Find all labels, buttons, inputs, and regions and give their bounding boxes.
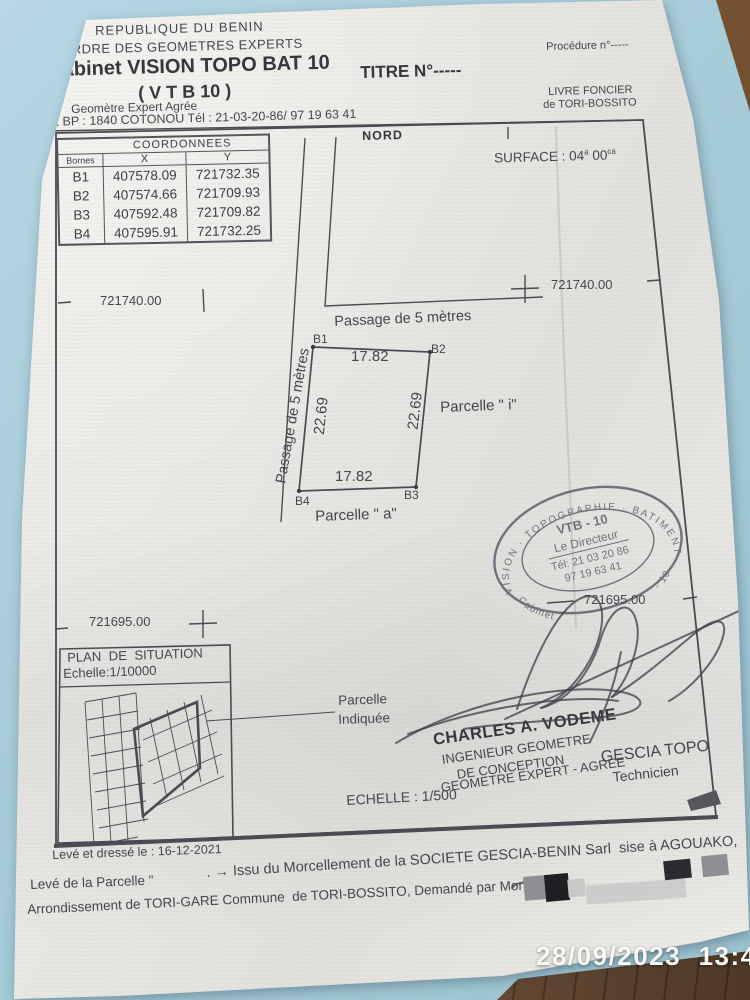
dimension-left: 22.69 bbox=[312, 396, 332, 435]
surface-centiares: 00 bbox=[592, 148, 607, 163]
parcel-outline bbox=[299, 347, 430, 491]
borne-y: 721732.35 bbox=[186, 164, 269, 185]
org-role: Technicien bbox=[612, 763, 679, 785]
stamp-directeur-text: Le Directeur bbox=[553, 527, 620, 555]
dimension-right: 22.69 bbox=[406, 391, 427, 430]
tick-mid-top bbox=[203, 289, 204, 312]
address-line: 02 BP : 1840 COTONOU Tél : 21-03-20-86/ … bbox=[45, 108, 357, 130]
borne-b4-label: B4 bbox=[295, 495, 310, 508]
stamp-outer-ring bbox=[482, 469, 695, 631]
svg-text:VISION · TOPOGRAPHIE · BATIMEN: VISION · TOPOGRAPHIE · BATIMENT bbox=[488, 485, 684, 597]
engineer-name: CHARLES A. VODEME bbox=[432, 705, 618, 749]
stamp-ring-top-text: VISION · TOPOGRAPHIE · BATIMENT bbox=[488, 485, 684, 597]
coordinates-table-header: Bornes X Y bbox=[58, 151, 268, 168]
borne-x: 407595.91 bbox=[104, 222, 187, 243]
grid-label-721695-right: 721695.00 bbox=[584, 593, 645, 607]
redaction-light bbox=[567, 878, 586, 897]
borne-y: 721709.82 bbox=[186, 202, 269, 223]
stamp-ring-bottom-right-text: - 10 bbox=[650, 567, 677, 593]
borne-y: 721709.93 bbox=[186, 183, 269, 204]
header-rule bbox=[44, 120, 643, 131]
surface-label: SURFACE : 04a 00ca bbox=[494, 148, 616, 167]
footer-arrondissement-line: Arrondissement de TORI-GARE Commune de T… bbox=[27, 876, 574, 918]
paper-crease bbox=[556, 126, 576, 628]
geometre-line: Geomètre Expert Agrée bbox=[71, 100, 197, 116]
stamp-ring-bottom-left-text: Cabinet bbox=[514, 589, 558, 630]
parcelle-i-label: Parcelle " i" bbox=[440, 397, 517, 416]
callout-indiquee: Indiquée bbox=[338, 711, 390, 728]
plan-linework: VISION · TOPOGRAPHIE · BATIMENT Cabinet … bbox=[0, 0, 750, 1000]
engineer-role1: INGENIEUR GEOMETRE bbox=[441, 732, 592, 767]
svg-text:Cabinet: Cabinet bbox=[514, 589, 558, 630]
surface-caption: SURFACE : bbox=[494, 149, 566, 166]
parcelle-a-label: Parcelle " a" bbox=[315, 506, 397, 525]
table-row: B4 407595.91 721732.25 bbox=[60, 221, 270, 244]
situation-grid-left bbox=[85, 693, 148, 845]
table-row: B1 407578.09 721732.35 bbox=[59, 164, 269, 187]
stamp-divider bbox=[549, 540, 629, 559]
col-y: Y bbox=[185, 151, 268, 165]
situation-grid-right bbox=[143, 695, 224, 805]
footer-morcellement-line: . → Issu du Morcellement de la SOCIETE G… bbox=[206, 834, 738, 881]
col-bornes: Bornes bbox=[58, 155, 102, 166]
borne-b2-label: B2 bbox=[431, 343, 446, 356]
callout-leader-line bbox=[206, 712, 335, 721]
director-stamp: VISION · TOPOGRAPHIE · BATIMENT Cabinet … bbox=[482, 469, 695, 632]
situation-separator bbox=[60, 682, 230, 687]
situation-scale: Echelle:1/10000 bbox=[63, 664, 157, 682]
stamp-vtb-text: VTB - 10 bbox=[555, 511, 609, 537]
passage-left-label: Passage de 5 mètres bbox=[274, 347, 313, 485]
vtb-abbrev: ( V T B 10 ) bbox=[138, 82, 232, 104]
stamp-phone2-text: 97 19 63 41 bbox=[564, 560, 623, 585]
procedure-number: Procédure n°----- bbox=[546, 39, 629, 53]
col-x: X bbox=[102, 152, 185, 166]
parcel-corner-dots bbox=[297, 345, 432, 493]
callout-parcelle: Parcelle bbox=[338, 692, 387, 709]
survey-document-paper: VISION · TOPOGRAPHIE · BATIMENT Cabinet … bbox=[0, 0, 750, 1000]
redaction-gray-right bbox=[701, 854, 729, 878]
tick-mid-bottom bbox=[547, 601, 574, 603]
livre-foncier-line1: LIVRE FONCIER bbox=[548, 84, 633, 98]
borne-id: B4 bbox=[60, 224, 104, 244]
table-row: B3 407592.48 721709.82 bbox=[59, 202, 269, 225]
handwritten-mark bbox=[512, 878, 532, 888]
cross-top-right bbox=[511, 275, 539, 303]
cross-bottom-left bbox=[189, 610, 217, 638]
redaction-smudge bbox=[585, 879, 686, 905]
footer-parcelle-line: Levé de la Parcelle " bbox=[30, 874, 154, 893]
surface-ares: 04 bbox=[569, 148, 584, 163]
ink-layer bbox=[0, 0, 750, 1000]
borne-b3-label: B3 bbox=[404, 489, 419, 502]
grid-label-721695-left: 721695.00 bbox=[89, 615, 150, 629]
dimension-bottom: 17.82 bbox=[335, 469, 373, 486]
borne-id: B2 bbox=[59, 186, 103, 206]
dark-corner-mark bbox=[687, 790, 721, 811]
situation-box bbox=[58, 645, 233, 843]
coordinates-table-title: COORDONNEES bbox=[58, 136, 268, 155]
paper-shading bbox=[0, 0, 750, 1000]
table-row: B2 407574.66 721709.93 bbox=[59, 183, 269, 206]
cabinet-title: Cabinet VISION TOPO BAT 10 bbox=[48, 52, 330, 81]
tick-right-bottom bbox=[683, 597, 697, 599]
stamp-inner-ring bbox=[514, 497, 662, 603]
tick-left-bottom bbox=[55, 628, 68, 629]
borne-x: 407592.48 bbox=[103, 203, 186, 224]
borne-x: 407574.66 bbox=[103, 184, 186, 205]
passage-north-line bbox=[325, 137, 543, 306]
redaction-black bbox=[544, 873, 570, 902]
borne-y: 721732.25 bbox=[187, 221, 270, 242]
borne-id: B1 bbox=[59, 167, 103, 187]
dimension-top: 17.82 bbox=[351, 349, 389, 366]
surface-centiares-unit: ca bbox=[607, 147, 616, 156]
north-label: NORD bbox=[362, 129, 403, 144]
borne-b1-label: B1 bbox=[313, 333, 328, 346]
titre-number: TITRE N°----- bbox=[360, 61, 462, 82]
tick-left-top bbox=[58, 302, 71, 303]
grid-marks bbox=[55, 127, 697, 638]
tick-right-top bbox=[647, 280, 660, 281]
camera-timestamp: 28/09/2023 13:46 bbox=[536, 941, 750, 972]
coordinates-table: COORDONNEES Bornes X Y B1 407578.09 7217… bbox=[56, 134, 272, 246]
footer-date-line: Levé et dressé le : 16-12-2021 bbox=[52, 843, 222, 863]
drawing-frame bbox=[56, 120, 716, 845]
surface-ares-unit: a bbox=[584, 148, 589, 157]
redaction-marks bbox=[523, 790, 729, 904]
drawing-scale: ECHELLE : 1/500 bbox=[346, 787, 457, 808]
paper-wrap: VISION · TOPOGRAPHIE · BATIMENT Cabinet … bbox=[0, 0, 750, 1000]
livre-foncier-line2: de TORI-BOSSITO bbox=[543, 97, 637, 112]
ordre-line: ORDRE DES GEOMETRES EXPERTS bbox=[61, 37, 303, 58]
redaction-gray bbox=[523, 875, 548, 901]
grid-label-721740-right: 721740.00 bbox=[551, 278, 612, 292]
org-name: GESCIA TOPO bbox=[600, 738, 710, 767]
situation-highlight-polygon bbox=[134, 702, 200, 816]
frame-bottom-bold-line bbox=[54, 817, 718, 846]
republique-line: REPUBLIQUE DU BENIN bbox=[95, 20, 264, 39]
engineer-role3: GEOMETRE EXPERT - AGREE bbox=[440, 755, 626, 795]
grid-label-721740-left: 721740.00 bbox=[100, 294, 161, 308]
stamp-phone1-text: Tél: 21 03 20 86 bbox=[550, 544, 630, 574]
borne-x: 407578.09 bbox=[103, 165, 186, 186]
svg-text:- 10: - 10 bbox=[650, 567, 677, 593]
passage-top-label: Passage de 5 mètres bbox=[334, 309, 472, 331]
redaction-black-right bbox=[663, 859, 692, 881]
signature bbox=[396, 596, 741, 743]
situation-title: PLAN DE SITUATION bbox=[67, 646, 203, 665]
engineer-role2: DE CONCEPTION bbox=[456, 753, 565, 782]
borne-id: B3 bbox=[59, 205, 103, 225]
passage-west-line bbox=[281, 138, 305, 522]
